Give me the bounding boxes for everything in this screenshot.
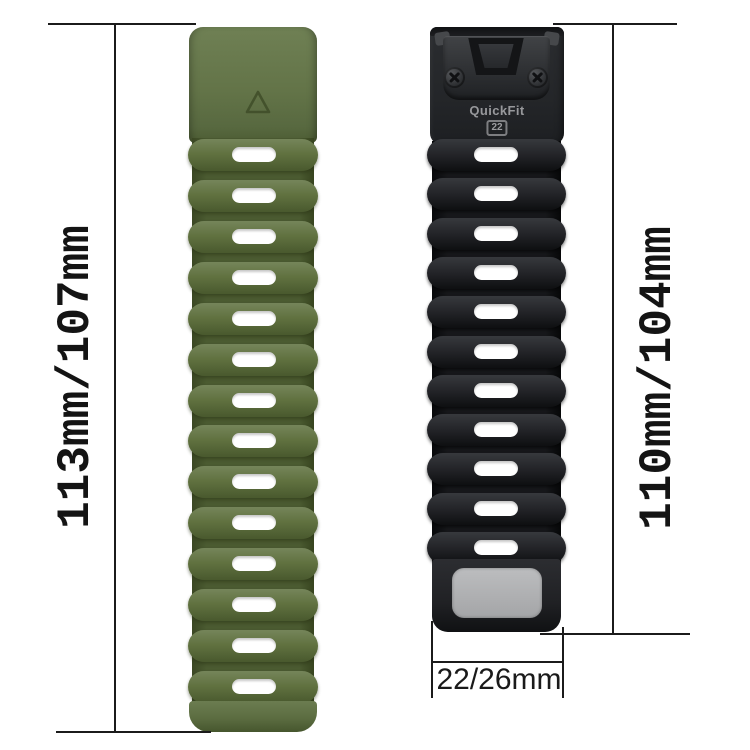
green-strap-rib [188, 344, 318, 376]
green-strap-rib [188, 671, 318, 703]
strap-slot [474, 344, 518, 359]
green-strap-rib [188, 466, 318, 498]
strap-slot [474, 304, 518, 319]
strap-slot [232, 679, 276, 694]
strap-slot [474, 422, 518, 437]
dim-left-line-vertical [114, 23, 116, 733]
green-strap-rib [188, 303, 318, 335]
black-strap-rib [427, 375, 566, 407]
green-strap-rib [188, 425, 318, 457]
black-watch-strap: QuickFit 22 [427, 27, 566, 632]
green-strap-rib [188, 180, 318, 212]
strap-slot [474, 186, 518, 201]
strap-slot [232, 556, 276, 571]
strap-slot [232, 229, 276, 244]
black-strap-rib [427, 139, 566, 171]
green-strap-rib [188, 507, 318, 539]
dim-left-cap-top [48, 23, 196, 25]
strap-slot [474, 383, 518, 398]
green-strap-rib [188, 630, 318, 662]
black-strap-ribs [427, 27, 566, 632]
black-strap-rib [427, 257, 566, 289]
green-strap-rib [188, 262, 318, 294]
strap-slot [232, 433, 276, 448]
strap-slot [232, 474, 276, 489]
strap-slot [232, 393, 276, 408]
black-strap-rib [427, 414, 566, 446]
strap-slot [232, 597, 276, 612]
strap-slot [232, 147, 276, 162]
strap-slot [232, 638, 276, 653]
product-dimension-diagram: QuickFit 22 113mm/107mm 110mm/104mm 22/2… [0, 0, 750, 750]
green-strap-rib [188, 221, 318, 253]
strap-slot [232, 270, 276, 285]
black-strap-rib [427, 336, 566, 368]
black-strap-rib [427, 453, 566, 485]
dim-right-cap-top [553, 23, 677, 25]
strap-slot [474, 461, 518, 476]
green-strap-ribs [188, 27, 318, 732]
dim-width-line-left [431, 621, 433, 698]
green-strap-rib [188, 139, 318, 171]
strap-slot [474, 501, 518, 516]
green-strap-bottom-end [189, 701, 317, 732]
strap-slot [474, 226, 518, 241]
green-watch-strap [188, 27, 318, 732]
green-strap-rib [188, 548, 318, 580]
dim-left-cap-bottom [56, 731, 211, 733]
dim-left-label: 113mm/107mm [50, 225, 102, 529]
strap-slot [474, 147, 518, 162]
black-strap-rib [427, 493, 566, 525]
gray-label-patch [452, 568, 542, 618]
dim-right-line-vertical [612, 23, 614, 635]
strap-slot [232, 352, 276, 367]
green-strap-rib [188, 385, 318, 417]
strap-slot [232, 515, 276, 530]
dim-width-label: 22/26mm [436, 663, 561, 697]
strap-slot [474, 540, 518, 555]
black-strap-rib [427, 178, 566, 210]
black-strap-rib [427, 296, 566, 328]
dim-right-label: 110mm/104mm [632, 226, 684, 530]
black-strap-rib [427, 218, 566, 250]
strap-slot [474, 265, 518, 280]
strap-slot [232, 311, 276, 326]
strap-slot [232, 188, 276, 203]
green-strap-rib [188, 589, 318, 621]
